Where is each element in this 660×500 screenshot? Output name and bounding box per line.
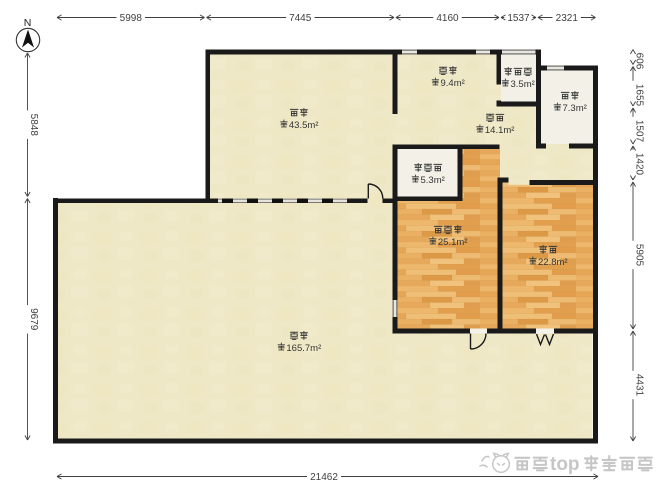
svg-text:2321: 2321 xyxy=(556,13,579,24)
svg-text:4160: 4160 xyxy=(436,13,459,24)
svg-text:1420: 1420 xyxy=(633,153,644,176)
svg-text:5998: 5998 xyxy=(120,13,143,24)
svg-text:9.4m²: 9.4m² xyxy=(441,78,465,89)
svg-text:5905: 5905 xyxy=(633,244,644,267)
svg-text:3.5m²: 3.5m² xyxy=(511,79,535,90)
svg-text:4431: 4431 xyxy=(633,374,644,397)
svg-text:N: N xyxy=(24,17,32,29)
svg-text:22.8m²: 22.8m² xyxy=(538,257,568,268)
svg-text:1537: 1537 xyxy=(507,13,530,24)
svg-text:5.3m²: 5.3m² xyxy=(421,175,445,186)
svg-text:9679: 9679 xyxy=(28,308,39,331)
svg-text:43.5m²: 43.5m² xyxy=(289,120,319,131)
svg-text:21462: 21462 xyxy=(310,472,338,483)
svg-text:7.3m²: 7.3m² xyxy=(563,103,587,114)
svg-text:165.7m²: 165.7m² xyxy=(286,343,321,354)
svg-text:5848: 5848 xyxy=(28,114,39,137)
svg-text:14.1m²: 14.1m² xyxy=(485,125,515,136)
svg-text:top: top xyxy=(550,454,580,475)
svg-text:7445: 7445 xyxy=(289,13,312,24)
svg-text:25.1m²: 25.1m² xyxy=(438,237,468,248)
svg-text:1507: 1507 xyxy=(633,120,644,143)
